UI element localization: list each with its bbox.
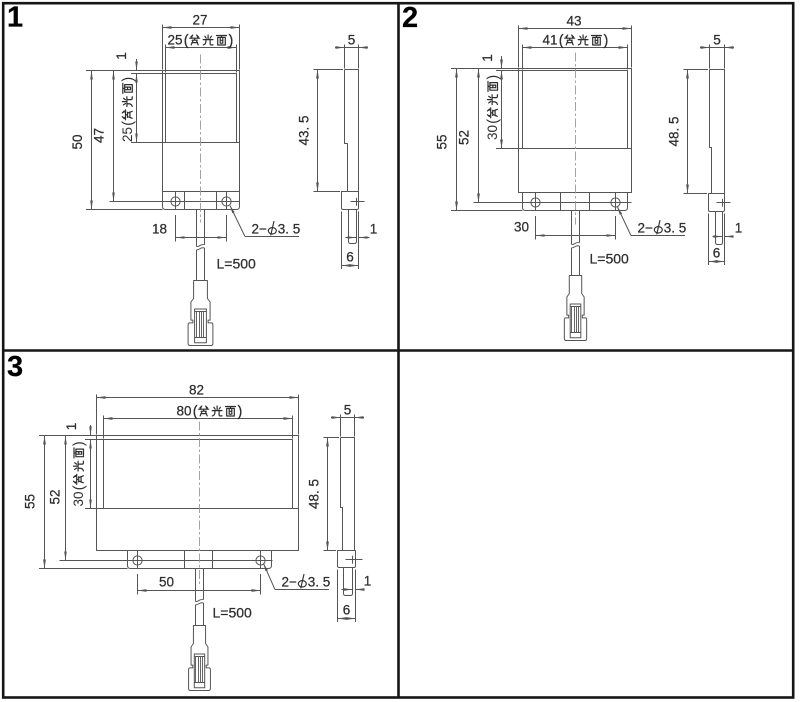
svg-text:2−: 2− [252,222,268,237]
svg-text:1: 1 [364,574,372,589]
svg-text:5: 5 [344,403,352,418]
svg-text:25: 25 [120,127,135,142]
svg-text:3. 5: 3. 5 [664,221,687,236]
svg-text:(: ( [121,121,137,126]
svg-text:3. 5: 3. 5 [308,575,331,590]
svg-text:43: 43 [566,13,581,28]
svg-text:3: 3 [7,351,23,383]
svg-text:): ) [72,441,88,446]
svg-text:): ) [604,33,609,49]
svg-text:41: 41 [543,33,558,48]
svg-text:1: 1 [7,2,23,34]
svg-text:1: 1 [64,423,79,431]
svg-text:55: 55 [435,134,450,149]
svg-text:1: 1 [735,221,743,236]
svg-text:): ) [238,404,243,420]
svg-text:): ) [486,75,502,80]
svg-text:L=500: L=500 [217,256,257,272]
svg-text:(: ( [184,33,189,49]
svg-text:1: 1 [370,222,378,237]
svg-text:5: 5 [348,33,356,48]
svg-text:52: 52 [457,130,472,145]
svg-text:): ) [121,77,137,82]
svg-text:47: 47 [92,128,107,143]
svg-text:L=500: L=500 [213,605,253,621]
svg-text:(: ( [559,33,564,49]
svg-text:): ) [229,33,234,49]
svg-text:6: 6 [713,246,721,261]
svg-text:1: 1 [480,54,495,62]
svg-text:2: 2 [402,2,418,34]
svg-text:18: 18 [152,222,167,237]
svg-text:(: ( [72,485,88,490]
svg-text:1: 1 [114,52,129,60]
svg-text:30: 30 [514,220,529,235]
svg-text:80: 80 [177,404,192,419]
svg-text:(: ( [193,404,198,420]
svg-text:82: 82 [189,382,204,397]
svg-text:L=500: L=500 [590,251,630,267]
svg-text:6: 6 [343,603,351,618]
svg-text:(: ( [486,119,502,124]
svg-text:6: 6 [346,250,354,265]
svg-text:3. 5: 3. 5 [278,222,301,237]
svg-text:25: 25 [168,33,183,48]
svg-text:27: 27 [192,12,207,27]
svg-text:48. 5: 48. 5 [307,479,322,509]
svg-text:30: 30 [485,125,500,140]
svg-text:5: 5 [713,33,721,48]
svg-text:55: 55 [23,494,38,509]
svg-text:2−: 2− [638,221,654,236]
svg-text:48. 5: 48. 5 [667,116,682,146]
svg-text:50: 50 [70,134,85,149]
svg-text:2−: 2− [282,575,298,590]
svg-text:50: 50 [159,575,174,590]
svg-text:30: 30 [71,491,86,506]
svg-text:52: 52 [48,489,63,504]
svg-text:43. 5: 43. 5 [297,115,312,145]
